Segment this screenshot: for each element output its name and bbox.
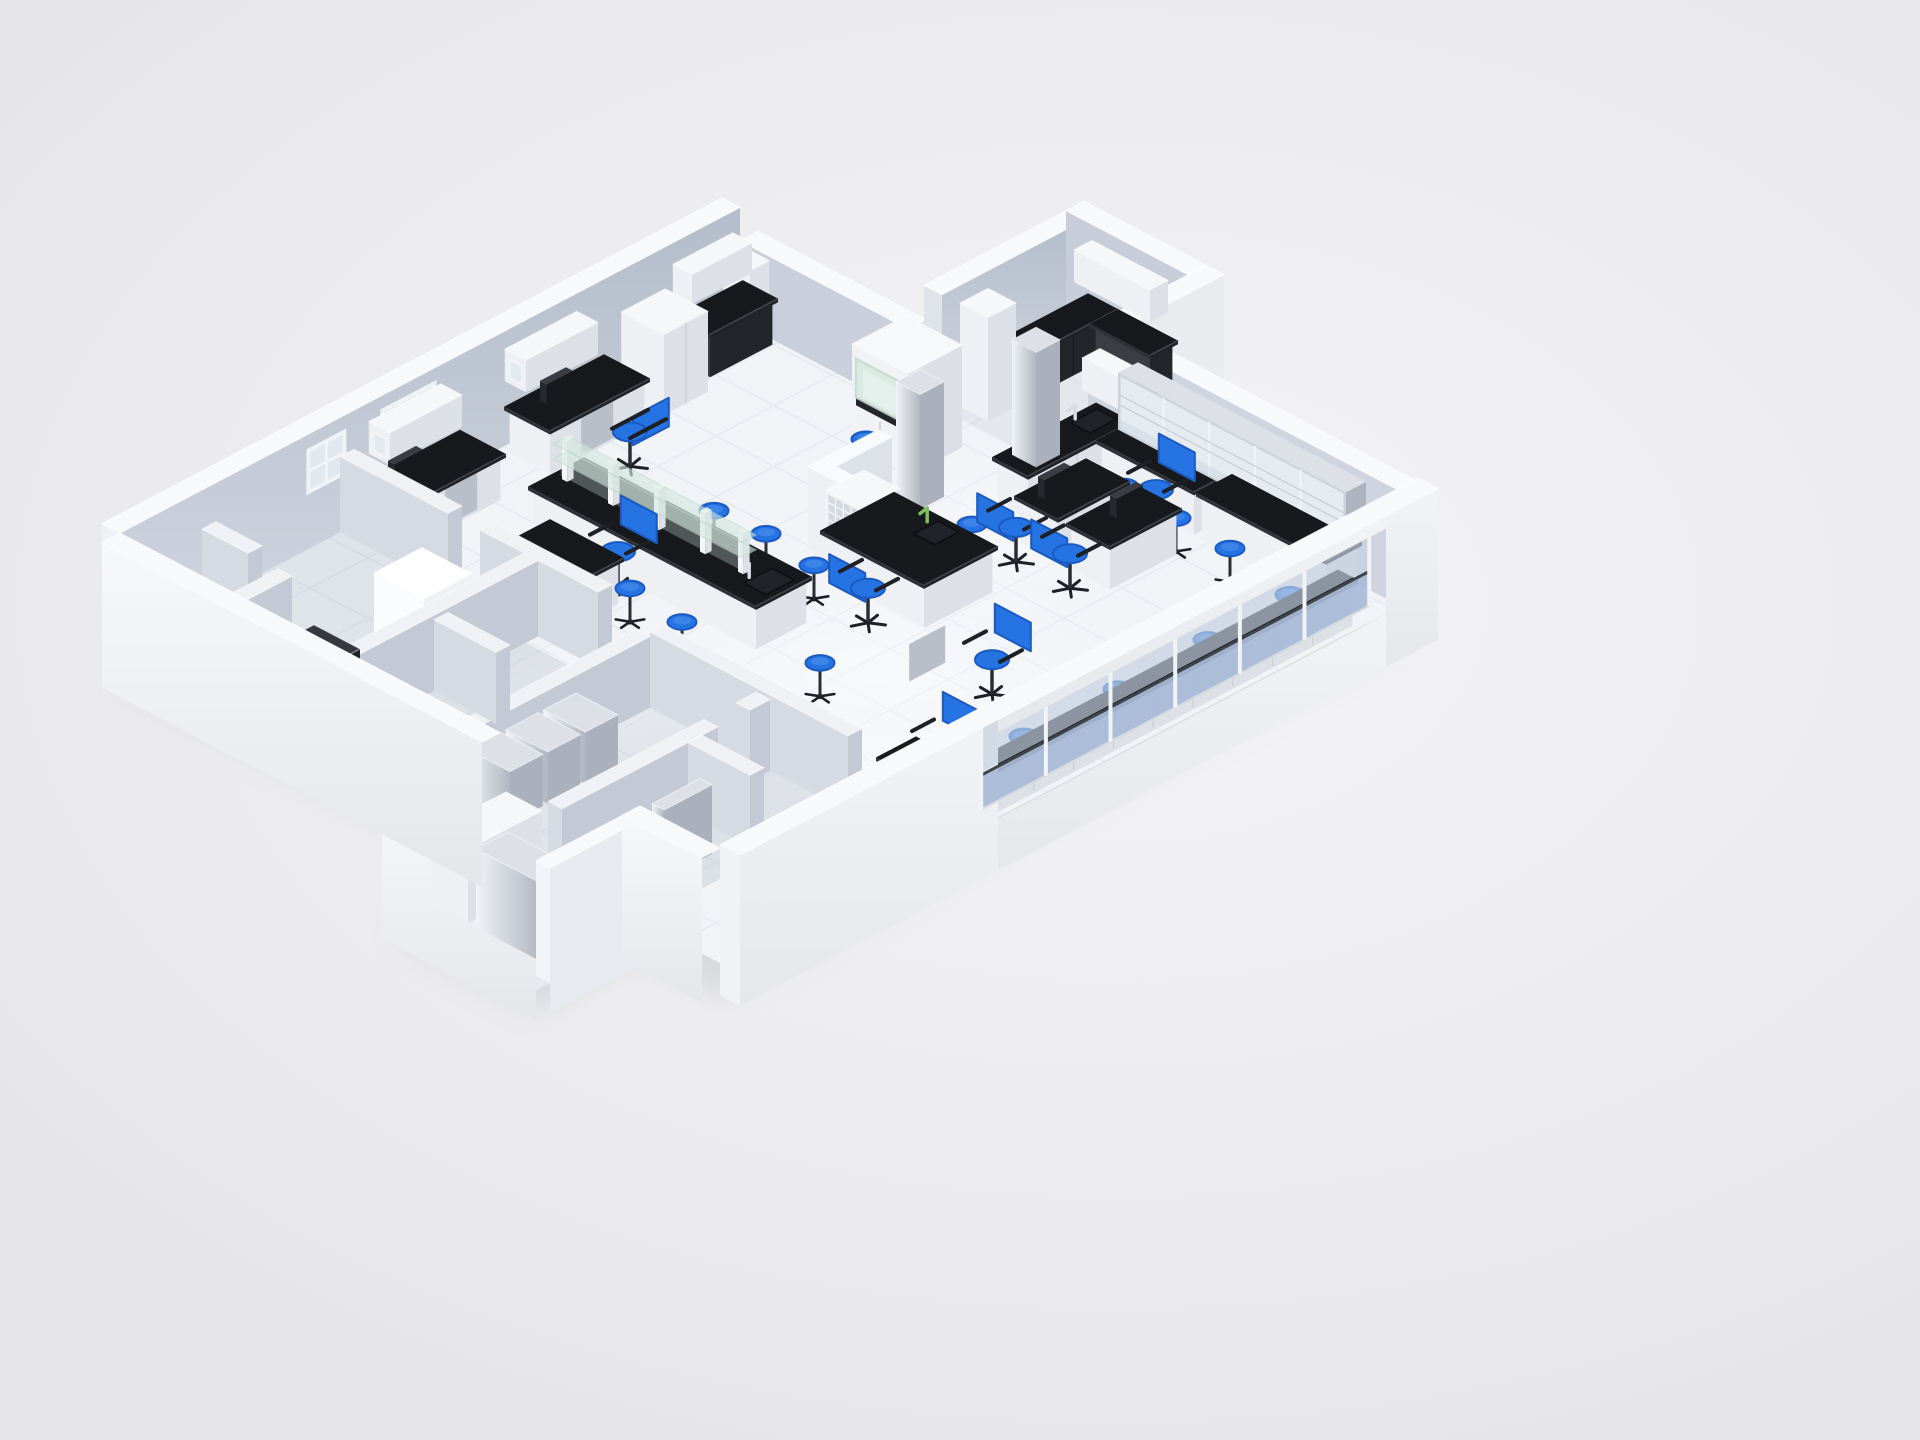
isometric-lab-render	[0, 0, 1920, 1440]
column-1	[896, 369, 944, 509]
column-2	[1012, 327, 1060, 467]
lab-floorplan-svg	[0, 0, 1920, 1440]
white-column-cabinet	[960, 288, 1016, 421]
